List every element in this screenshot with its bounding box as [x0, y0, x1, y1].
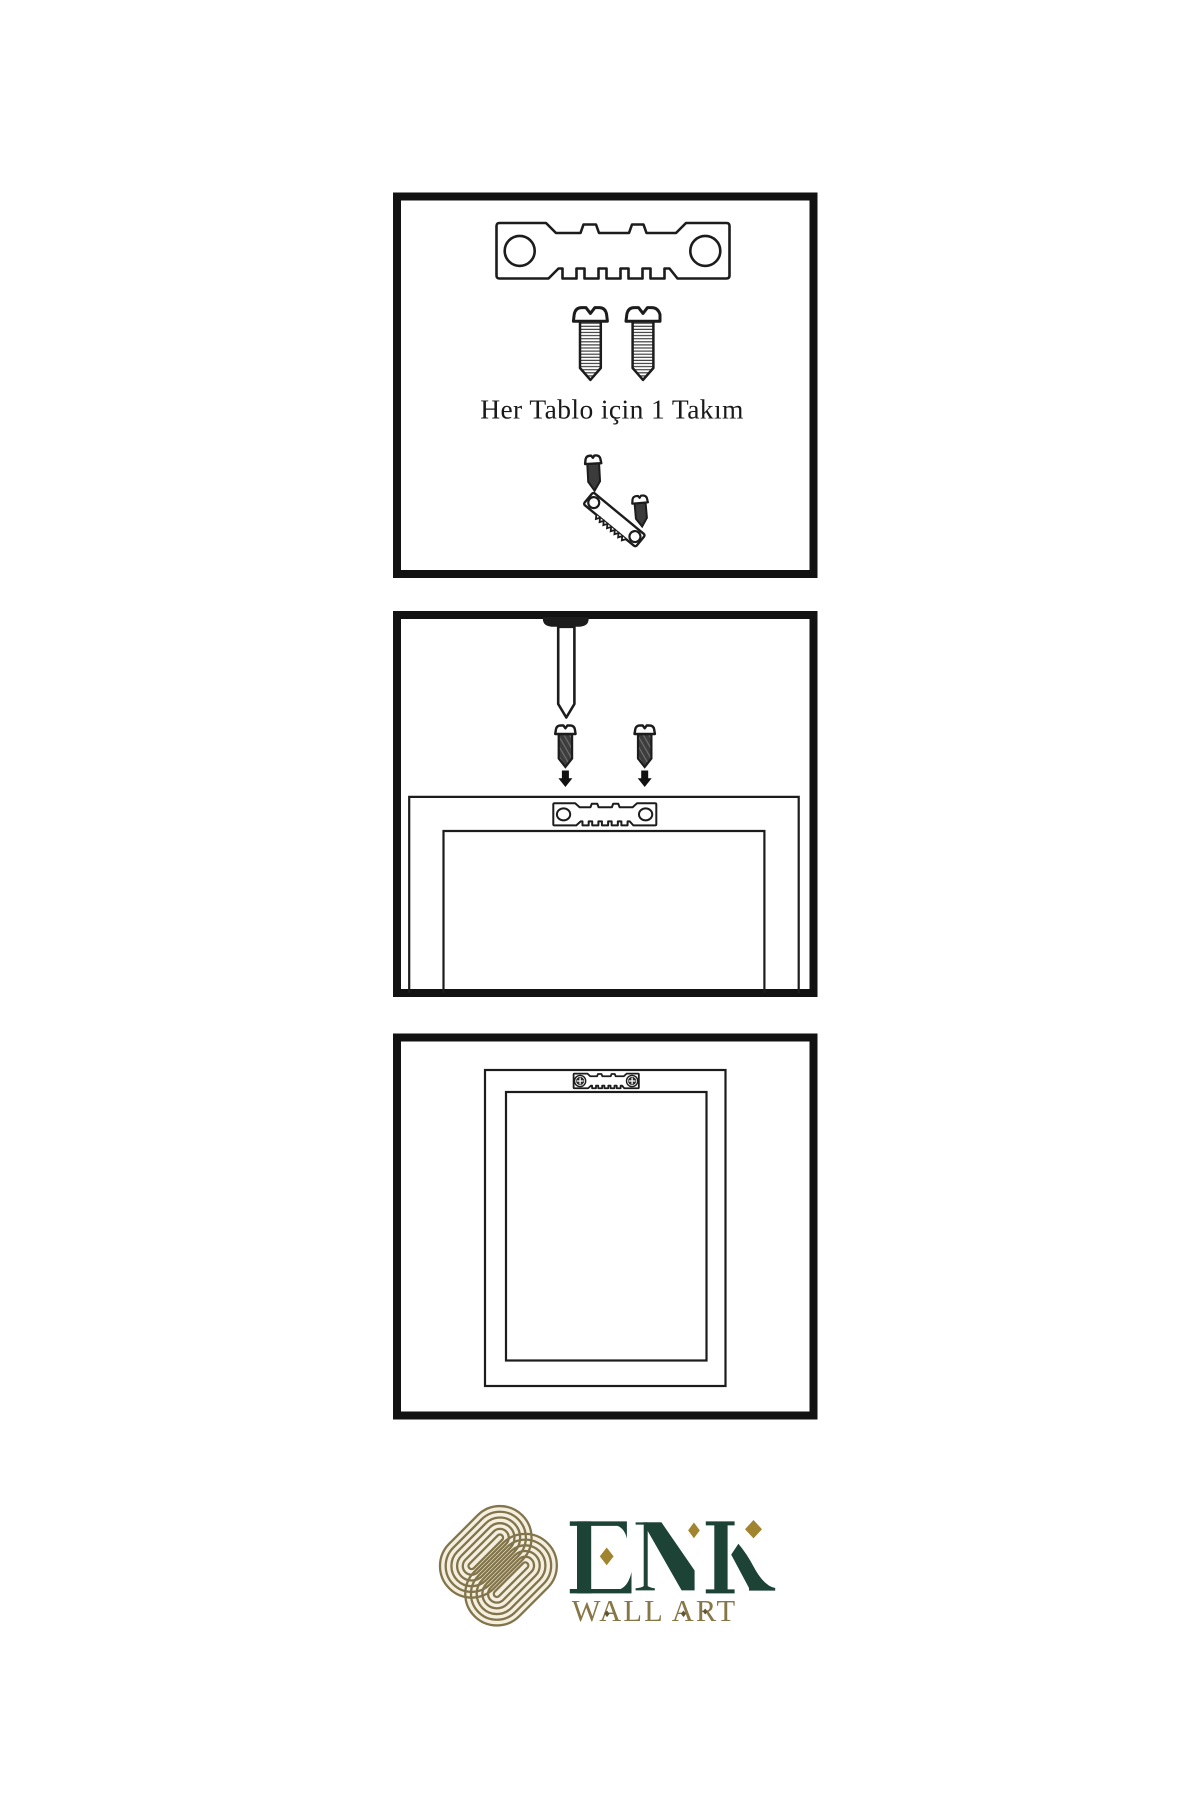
svg-text:Her Tablo için 1 Takım: Her Tablo için 1 Takım: [480, 394, 744, 425]
svg-text:WALL ART: WALL ART: [572, 1594, 737, 1628]
